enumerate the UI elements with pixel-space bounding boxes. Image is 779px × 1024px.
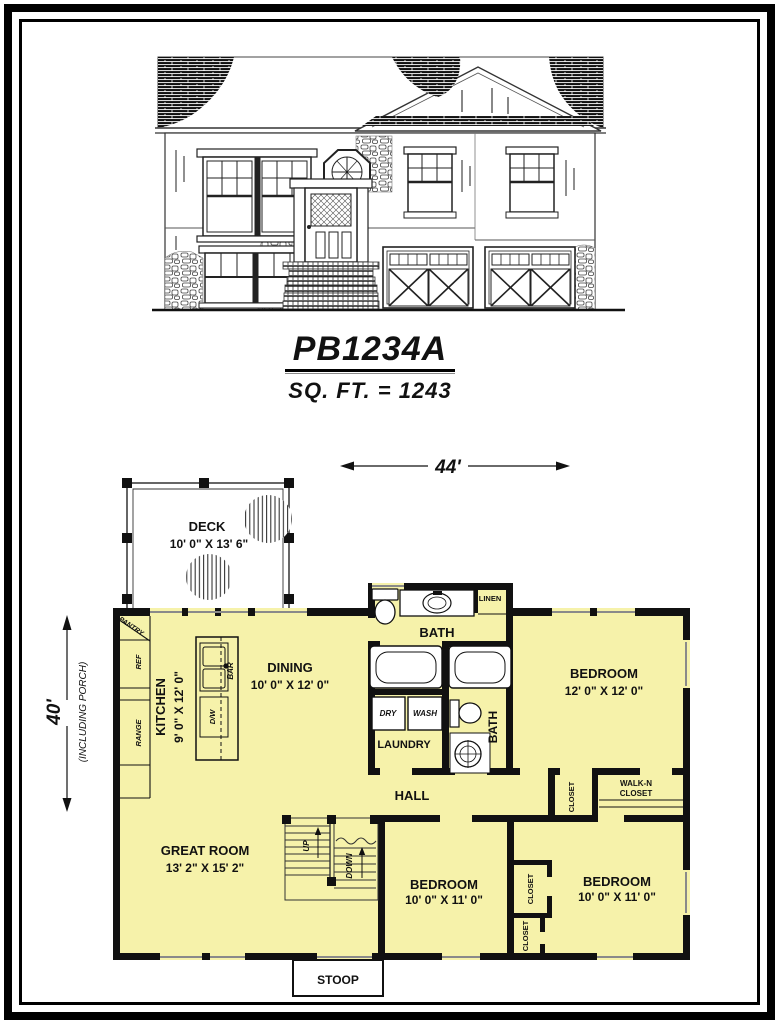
window-upper-right-2 bbox=[506, 147, 558, 218]
great-room-label: GREAT ROOM bbox=[161, 843, 250, 858]
bedroom-three-label: BEDROOM bbox=[583, 874, 651, 889]
arrow-right-icon bbox=[556, 462, 570, 471]
walkin-closet-line2: CLOSET bbox=[620, 789, 653, 798]
width-dimension-label: 44' bbox=[434, 457, 462, 478]
bar-label: BAR bbox=[226, 662, 235, 680]
bedroom-two-size: 10' 0" X 11' 0" bbox=[405, 893, 483, 907]
height-dimension-note: (INCLUDING PORCH) bbox=[78, 662, 89, 763]
title-block: PB1234A SQ. FT. = 1243 bbox=[0, 332, 740, 404]
ref-label: REF bbox=[134, 654, 143, 669]
deck: DECK 10' 0" X 13' 6" bbox=[122, 478, 294, 608]
stairs-up-label: UP bbox=[302, 840, 311, 852]
stairs-down-label: DOWN bbox=[345, 853, 354, 879]
garage-door-left bbox=[383, 247, 473, 308]
front-steps bbox=[283, 262, 379, 309]
arrow-left-icon bbox=[340, 462, 354, 471]
laundry-label: LAUNDRY bbox=[377, 739, 431, 751]
front-elevation-drawing bbox=[152, 57, 625, 310]
height-dimension: 40' (INCLUDING PORCH) bbox=[44, 615, 89, 812]
linen-label: LINEN bbox=[479, 594, 502, 603]
bedroom-master-label: BEDROOM bbox=[570, 666, 638, 681]
front-door bbox=[290, 179, 372, 262]
dining-size: 10' 0" X 12' 0" bbox=[251, 678, 329, 692]
closet-hall-label: CLOSET bbox=[567, 781, 576, 812]
window-upper-right-1 bbox=[404, 147, 456, 218]
deck-label: DECK bbox=[189, 519, 226, 534]
garage-door-right bbox=[485, 247, 575, 308]
dryer-label: DRY bbox=[380, 709, 397, 718]
bathtubs bbox=[370, 646, 511, 688]
title-underline bbox=[285, 369, 455, 372]
bedroom-two-label: BEDROOM bbox=[410, 877, 478, 892]
plan-number: PB1234A bbox=[283, 332, 457, 368]
toilet-bowl-icon bbox=[375, 600, 395, 624]
kitchen-label: KITCHEN bbox=[153, 678, 168, 736]
plan-sheet: 44' 40' (INCLUDING PORCH) bbox=[0, 0, 779, 1024]
drawing-canvas: 44' 40' (INCLUDING PORCH) bbox=[0, 0, 779, 1024]
dining-label: DINING bbox=[267, 660, 313, 675]
bedroom-master-size: 12' 0" X 12' 0" bbox=[565, 684, 643, 698]
range-label: RANGE bbox=[134, 718, 143, 746]
washer-label: WASH bbox=[413, 709, 437, 718]
shrub bbox=[244, 495, 292, 543]
floor-plan: DECK 10' 0" X 13' 6" bbox=[113, 478, 690, 996]
stoop: STOOP bbox=[293, 960, 383, 996]
dishwasher-label: D/W bbox=[208, 709, 217, 725]
great-room-size: 13' 2" X 15' 2" bbox=[166, 861, 244, 875]
faucet-icon bbox=[433, 591, 442, 595]
toilet-tank-icon bbox=[372, 589, 398, 600]
title-underline-2 bbox=[285, 373, 455, 374]
bath-main-label: BATH bbox=[419, 625, 454, 640]
arrow-down-icon bbox=[63, 798, 72, 812]
deck-size: 10' 0" X 13' 6" bbox=[170, 537, 248, 551]
toilet-tank-icon bbox=[450, 700, 459, 727]
bath-second-label: BATH bbox=[486, 711, 500, 743]
toilet-bowl-icon bbox=[459, 703, 481, 723]
height-dimension-label: 40' bbox=[44, 698, 65, 726]
kitchen-size: 9' 0" X 12' 0" bbox=[172, 671, 186, 743]
square-footage: SQ. FT. = 1243 bbox=[0, 378, 740, 404]
bedroom-three-size: 10' 0" X 11' 0" bbox=[578, 890, 656, 904]
closet-b3-label: CLOSET bbox=[521, 920, 530, 951]
stoop-label: STOOP bbox=[317, 973, 359, 987]
closet-b2-label: CLOSET bbox=[526, 873, 535, 904]
width-dimension: 44' bbox=[340, 457, 570, 478]
shrub bbox=[186, 554, 232, 600]
arrow-up-icon bbox=[63, 615, 72, 630]
walkin-closet-line1: WALK-N bbox=[620, 779, 652, 788]
hall-label: HALL bbox=[395, 788, 430, 803]
